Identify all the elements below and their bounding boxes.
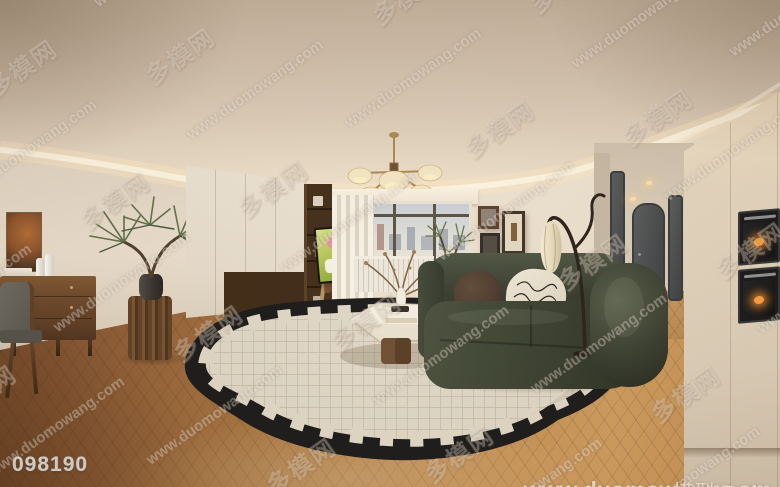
watermark-text: 多模网 [0, 30, 64, 103]
watermark-text: 多模网 [0, 355, 23, 428]
watermark-text: www.duomowang.com [91, 0, 244, 25]
watermark-text: 多模网 [230, 151, 314, 224]
watermark-text: 多模网 [550, 224, 634, 297]
model-id: 模型ID: M0089104 [673, 477, 772, 487]
watermark-text: 多模网 [522, 0, 606, 20]
watermark-layer: 多模网www.duomowang.com多模网www.duomowang.com… [0, 0, 780, 487]
watermark-text: 多模网 [457, 91, 541, 164]
watermark-text: 多模网 [73, 163, 157, 236]
watermark-text: 多模网 [258, 428, 342, 487]
watermark-text: 多模网 [708, 212, 780, 285]
watermark-text: 多模网 [615, 79, 699, 152]
watermark-text: 多模网 [364, 0, 448, 32]
watermark-text: 多模网 [165, 295, 249, 368]
watermark-text: 多模网 [138, 18, 222, 91]
watermark-text: 多模网 [323, 284, 407, 357]
watermark-text: www.duomowang.com [0, 241, 45, 363]
watermark-text: 多模网 [416, 416, 500, 487]
watermark-text: www.duomowang.com [726, 0, 780, 75]
watermark-text: www.duomowang.com [568, 0, 721, 86]
panorama-image: 多模网www.duomowang.com多模网www.duomowang.com… [0, 0, 780, 487]
watermark-text: 多模网 [643, 356, 727, 429]
photo-id: 098190 [12, 453, 88, 477]
